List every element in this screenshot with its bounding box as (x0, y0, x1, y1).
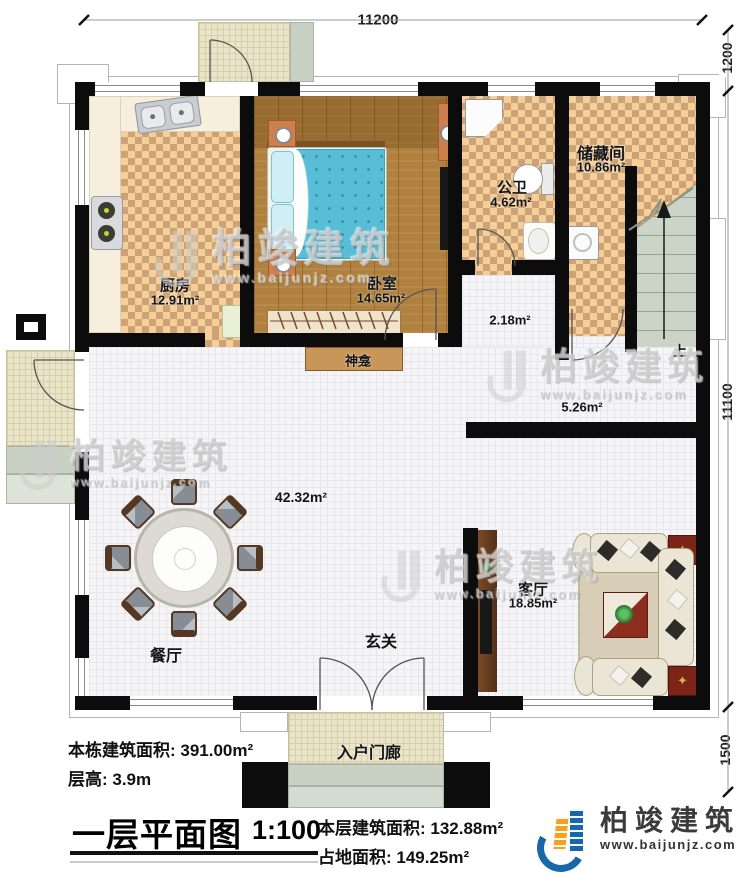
footprint-area: 占地面积: 149.25m² (318, 843, 469, 868)
room-area-storage: 10.86m² (577, 160, 625, 175)
window (95, 82, 180, 96)
brand-logo-icon (540, 806, 592, 862)
wall-bath-bottom (512, 260, 555, 275)
stairs-up-label: 上 (673, 341, 687, 361)
washing-machine (566, 226, 599, 260)
window (600, 82, 655, 96)
room-area-bedroom: 14.65m² (357, 291, 405, 306)
pillow (271, 151, 294, 203)
cabinet-plant-icon (483, 562, 492, 571)
room-area-kitchen: 12.91m² (151, 293, 199, 308)
entry-pillar-left (242, 762, 288, 808)
bed-duvet (296, 149, 385, 259)
dimension-top: 11200 (352, 12, 405, 29)
window (75, 658, 89, 696)
window (75, 520, 89, 595)
brand-logo: 柏竣建筑 www.baijunjz.com (540, 806, 740, 862)
wall-right (696, 82, 710, 710)
back-porch-step (290, 22, 314, 82)
entry-opening (317, 696, 427, 710)
dining-chair (237, 545, 263, 571)
room-label-entry: 玄关 (365, 628, 397, 652)
drawing-scale: 1:100 (252, 815, 321, 846)
wall-bedroom-hall (448, 96, 462, 347)
back-door-opening (205, 82, 258, 96)
burner-icon (98, 225, 115, 242)
side-porch-step2 (6, 474, 75, 504)
side-door-opening (75, 352, 89, 452)
sink-basin-left (140, 105, 167, 130)
window (130, 696, 233, 710)
window (488, 82, 535, 96)
shrine-label: 神龛 (345, 351, 371, 370)
floor-plan-sheet: ✦ ✦ (0, 0, 750, 878)
living-tv (480, 590, 492, 654)
wardrobe (267, 310, 401, 334)
bathroom-sink (523, 222, 556, 260)
wall-bath-bottom-stub (462, 260, 475, 275)
wall-bath-storage (555, 96, 569, 360)
wall-corridor-living (466, 422, 696, 438)
title-underline (70, 851, 318, 855)
window (300, 82, 418, 96)
entry-pillar-right (444, 762, 490, 808)
dimension-right-bottom: 1500 (717, 730, 733, 769)
entry-porch-label: 入户门廊 (337, 739, 401, 763)
drawing-title: 一层平面图 (72, 808, 242, 856)
floor-height: 层高: 3.9m (68, 765, 151, 790)
window (523, 696, 653, 710)
entry-porch-side-right (443, 712, 491, 732)
entry-porch-step2 (288, 786, 444, 808)
back-porch (198, 22, 290, 82)
nightstand (268, 120, 296, 147)
total-building-area: 本栋建筑面积: 391.00m² (68, 736, 253, 761)
nightstand (268, 249, 296, 276)
coffee-table-plant (615, 605, 633, 623)
stove (91, 196, 123, 250)
hall-area: 2.18m² (489, 313, 530, 328)
sink-basin-right (169, 100, 196, 125)
room-area-living: 18.85m² (509, 596, 557, 611)
title-underline-light (70, 861, 318, 863)
floor-area: 本层建筑面积: 132.88m² (318, 814, 503, 839)
dining-chair (105, 545, 131, 571)
dimension-right-top: 1200 (719, 38, 735, 77)
burner-icon (98, 202, 115, 219)
window (75, 130, 89, 205)
side-porch (6, 350, 75, 446)
hall-floor (462, 275, 555, 347)
wall-storage-stairs (625, 166, 637, 352)
corridor-area: 5.26m² (561, 400, 602, 415)
wall-below-kitchen (89, 333, 205, 347)
wall-tv (463, 528, 478, 696)
side-porch-step1 (6, 446, 75, 474)
side-table: ✦ (668, 666, 697, 696)
dining-area: 42.32m² (275, 489, 327, 505)
room-label-dining: 餐厅 (150, 642, 182, 666)
dining-chair (171, 611, 197, 637)
brand-name: 柏竣建筑 (600, 806, 740, 837)
wall-kitchen-bedroom (240, 96, 254, 347)
brand-url: www.baijunjz.com (600, 837, 740, 852)
room-area-bathroom: 4.62m² (490, 195, 531, 210)
entry-porch-side-left (240, 712, 288, 732)
wall-below-bedroom (254, 333, 403, 347)
dining-table-center (174, 548, 196, 570)
dimension-right-middle: 11100 (719, 379, 735, 424)
entry-porch-step1 (288, 764, 444, 786)
dining-chair (171, 479, 197, 505)
sofa-bottom (592, 658, 668, 696)
column-box-left (16, 314, 46, 340)
storage-floor-left (569, 96, 625, 336)
